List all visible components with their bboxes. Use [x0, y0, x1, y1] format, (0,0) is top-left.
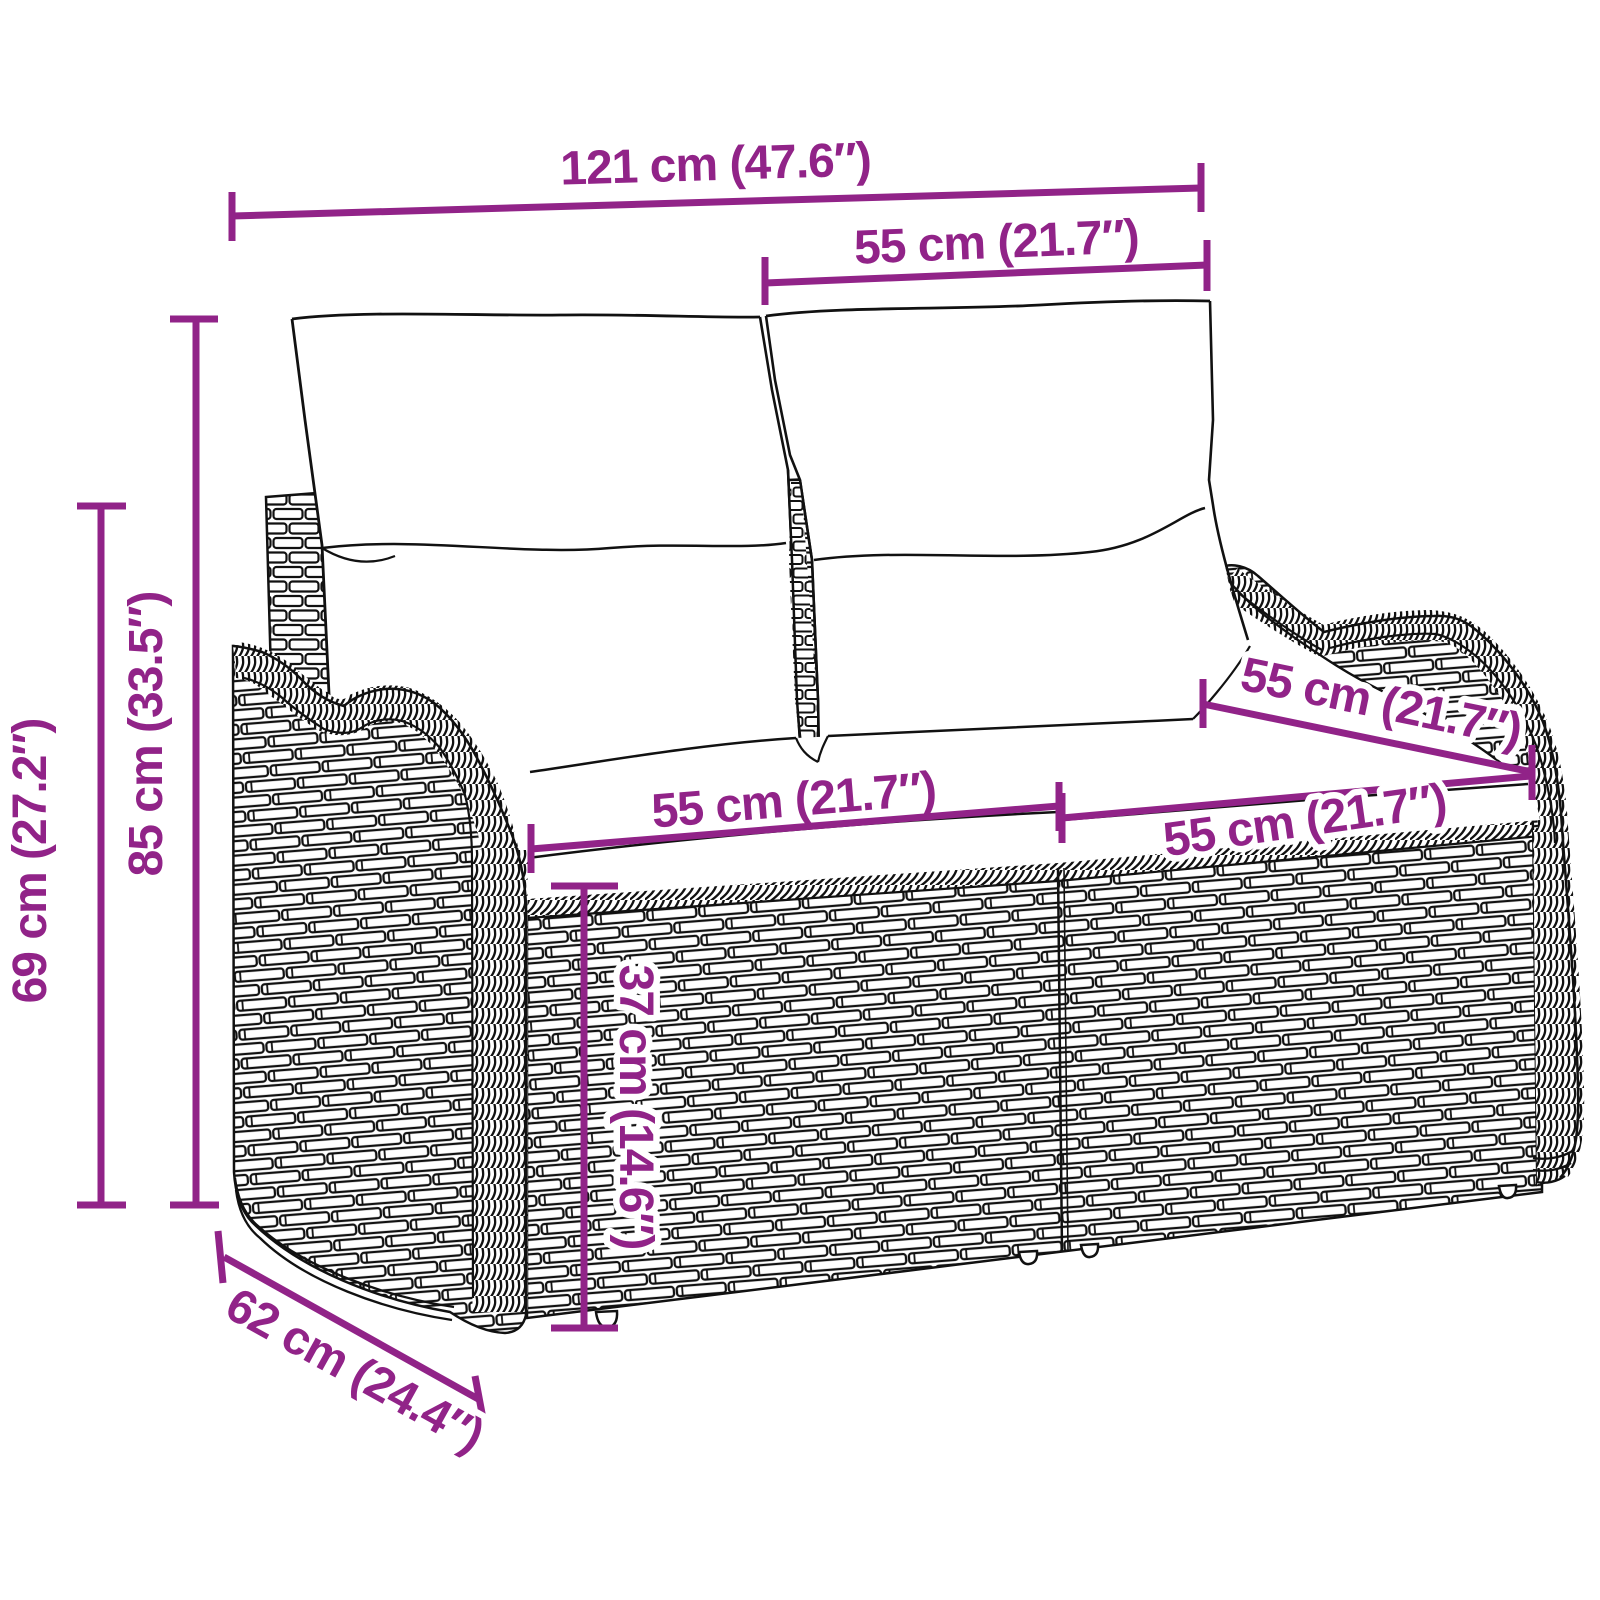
- svg-text:85 cm (33.5″): 85 cm (33.5″): [120, 592, 173, 877]
- svg-text:69 cm (27.2″): 69 cm (27.2″): [4, 719, 57, 1004]
- svg-text:37 cm (14.6″): 37 cm (14.6″): [609, 965, 662, 1250]
- svg-text:121 cm (47.6″): 121 cm (47.6″): [560, 133, 872, 195]
